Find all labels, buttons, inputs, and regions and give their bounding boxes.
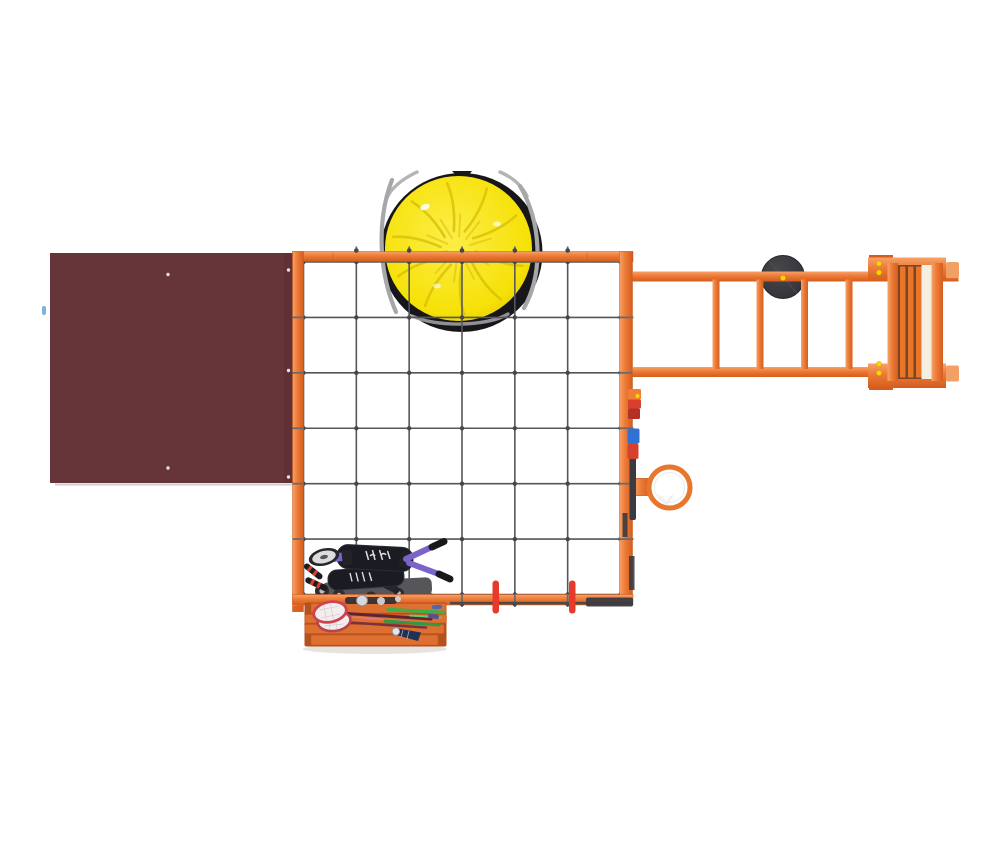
frame-left-bar	[293, 252, 304, 612]
render-canvas	[0, 0, 1000, 843]
blue-fitting	[42, 306, 46, 315]
roof-surface	[50, 253, 300, 483]
ladder-right-rail	[932, 263, 944, 381]
ladder-rung-1	[900, 267, 906, 378]
picnic-bench	[303, 595, 447, 654]
ladder-rung-2	[908, 267, 914, 378]
roof-shadow-line	[55, 484, 295, 486]
ladder-rung-3	[916, 267, 922, 378]
ladder-left-rail	[888, 263, 899, 381]
scooter-front-wheel-top	[307, 545, 341, 569]
frame-top-bar	[293, 252, 634, 262]
scooter-grips-left	[303, 562, 329, 592]
roof-panel	[42, 253, 300, 486]
shuttlecock-tip	[392, 628, 399, 635]
access-ladder	[868, 255, 959, 390]
saucer-cushion	[385, 176, 532, 321]
monkey-bars	[633, 255, 960, 390]
basketball-hoop	[634, 467, 691, 508]
rail-tip-top	[946, 262, 959, 278]
dark-fittings	[450, 513, 635, 607]
gadget-red	[628, 400, 641, 409]
gadget-orange	[628, 389, 641, 400]
gadget-dark-red	[628, 409, 640, 420]
ladder-panel	[922, 265, 932, 379]
corner-bracket	[586, 598, 633, 607]
gadget-strip	[630, 450, 637, 520]
gadget-bolt	[636, 394, 640, 398]
scooter-handlebar-right	[399, 542, 450, 580]
playground-render	[0, 0, 1000, 843]
gadget-red-2	[628, 444, 639, 460]
rail-tip-bottom	[946, 366, 959, 382]
scooter-clamp	[341, 550, 353, 566]
gadget-blue	[628, 429, 640, 444]
activity-gadgets	[628, 389, 642, 520]
